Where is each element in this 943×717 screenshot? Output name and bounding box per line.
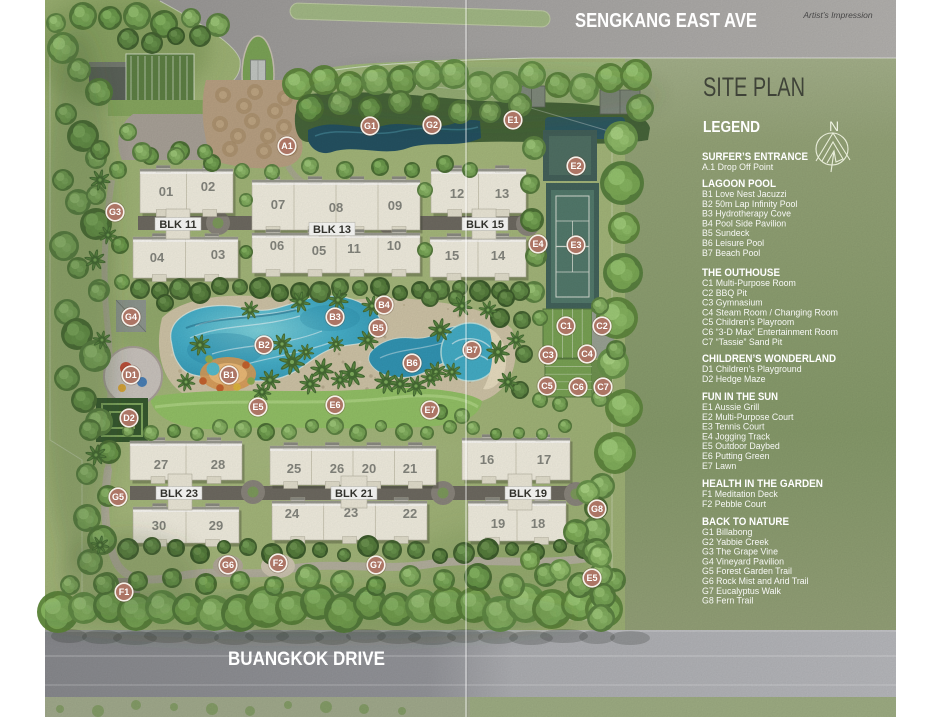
svg-text:SITE PLAN: SITE PLAN: [703, 72, 805, 102]
svg-text:D1: D1: [125, 370, 137, 380]
svg-text:G7 Eucalyptus Walk: G7 Eucalyptus Walk: [702, 586, 781, 596]
svg-text:A.1 Drop Off Point: A.1 Drop Off Point: [702, 162, 774, 172]
svg-text:E1: E1: [507, 115, 518, 125]
svg-text:F1 Meditation Deck: F1 Meditation Deck: [702, 489, 778, 499]
svg-text:B4: B4: [378, 300, 390, 310]
svg-text:G7: G7: [370, 560, 382, 570]
svg-text:C6 “3-D Max” Entertainment Roo: C6 “3-D Max” Entertainment Room: [702, 327, 838, 337]
svg-text:E6: E6: [329, 400, 340, 410]
svg-text:G8 Fern Trail: G8 Fern Trail: [702, 596, 753, 606]
svg-text:E2 Multi-Purpose Court: E2 Multi-Purpose Court: [702, 412, 794, 422]
svg-text:C4 Steam Room / Changing Room: C4 Steam Room / Changing Room: [702, 307, 838, 317]
svg-text:C6: C6: [572, 382, 584, 392]
svg-text:F1: F1: [119, 587, 130, 597]
svg-text:B4 Pool Side Pavilion: B4 Pool Side Pavilion: [702, 218, 786, 228]
svg-text:E3: E3: [570, 240, 581, 250]
svg-text:N: N: [829, 118, 839, 134]
svg-text:C2 BBQ Pit: C2 BBQ Pit: [702, 288, 748, 298]
svg-text:G6 Rock Mist and Arid Trail: G6 Rock Mist and Arid Trail: [702, 576, 809, 586]
svg-text:C3 Gymnasium: C3 Gymnasium: [702, 298, 763, 308]
svg-text:B6: B6: [406, 358, 418, 368]
svg-text:G5: G5: [112, 492, 124, 502]
svg-text:E4 Jogging Track: E4 Jogging Track: [702, 431, 771, 441]
svg-text:B6 Leisure Pool: B6 Leisure Pool: [702, 238, 764, 248]
svg-text:SENGKANG EAST AVE: SENGKANG EAST AVE: [575, 10, 757, 32]
svg-text:BUANGKOK DRIVE: BUANGKOK DRIVE: [228, 649, 385, 670]
svg-text:A1: A1: [281, 141, 293, 151]
svg-text:B2: B2: [258, 340, 270, 350]
svg-text:C7: C7: [597, 382, 609, 392]
svg-text:E7: E7: [424, 405, 435, 415]
svg-text:E5 Outdoor Daybed: E5 Outdoor Daybed: [702, 441, 780, 451]
svg-text:F2: F2: [273, 558, 284, 568]
svg-text:G3 The Grape Vine: G3 The Grape Vine: [702, 547, 778, 557]
svg-text:D2 Hedge Maze: D2 Hedge Maze: [702, 374, 766, 384]
svg-text:B1 Love Nest Jacuzzi: B1 Love Nest Jacuzzi: [702, 189, 787, 199]
svg-text:E2: E2: [570, 161, 581, 171]
svg-text:E1 Aussie Grill: E1 Aussie Grill: [702, 402, 759, 412]
svg-text:G1: G1: [364, 121, 376, 131]
svg-text:G1 Billabong: G1 Billabong: [702, 527, 752, 537]
svg-text:B1: B1: [223, 370, 235, 380]
svg-text:B5 Sundeck: B5 Sundeck: [702, 228, 750, 238]
svg-text:G2: G2: [426, 120, 438, 130]
svg-text:C1: C1: [560, 321, 572, 331]
svg-text:C1 Multi-Purpose Room: C1 Multi-Purpose Room: [702, 278, 796, 288]
svg-text:G4: G4: [125, 312, 137, 322]
svg-text:Artist’s Impression: Artist’s Impression: [802, 10, 873, 20]
svg-text:E5: E5: [586, 573, 597, 583]
svg-text:G6: G6: [222, 560, 234, 570]
svg-text:D1 Children’s Playground: D1 Children’s Playground: [702, 364, 802, 374]
svg-text:E7 Lawn: E7 Lawn: [702, 461, 736, 471]
svg-text:B5: B5: [372, 323, 384, 333]
svg-text:G5 Forest Garden Trail: G5 Forest Garden Trail: [702, 566, 792, 576]
svg-text:D2: D2: [123, 413, 135, 423]
svg-text:C3: C3: [542, 350, 554, 360]
svg-text:C7 “Tassie” Sand Pit: C7 “Tassie” Sand Pit: [702, 337, 783, 347]
svg-text:F2 Pebble Court: F2 Pebble Court: [702, 499, 767, 509]
svg-text:B2 50m Lap Infinity Pool: B2 50m Lap Infinity Pool: [702, 199, 797, 209]
svg-text:LEGEND: LEGEND: [703, 119, 760, 136]
svg-text:G8: G8: [591, 504, 603, 514]
svg-text:B7 Beach Pool: B7 Beach Pool: [702, 248, 760, 258]
svg-text:E4: E4: [532, 239, 543, 249]
svg-text:G3: G3: [109, 207, 121, 217]
svg-text:C4: C4: [581, 349, 593, 359]
svg-text:B3 Hydrotherapy Cove: B3 Hydrotherapy Cove: [702, 209, 791, 219]
svg-text:C2: C2: [596, 321, 608, 331]
svg-text:B3: B3: [329, 312, 341, 322]
svg-text:E3 Tennis Court: E3 Tennis Court: [702, 422, 765, 432]
svg-text:E5: E5: [252, 402, 263, 412]
svg-text:G2 Yabbie Creek: G2 Yabbie Creek: [702, 537, 769, 547]
svg-text:C5: C5: [541, 381, 553, 391]
svg-text:C5 Children’s Playroom: C5 Children’s Playroom: [702, 317, 794, 327]
svg-text:E6 Putting Green: E6 Putting Green: [702, 451, 770, 461]
svg-text:G4 Vineyard Pavilion: G4 Vineyard Pavilion: [702, 556, 784, 566]
